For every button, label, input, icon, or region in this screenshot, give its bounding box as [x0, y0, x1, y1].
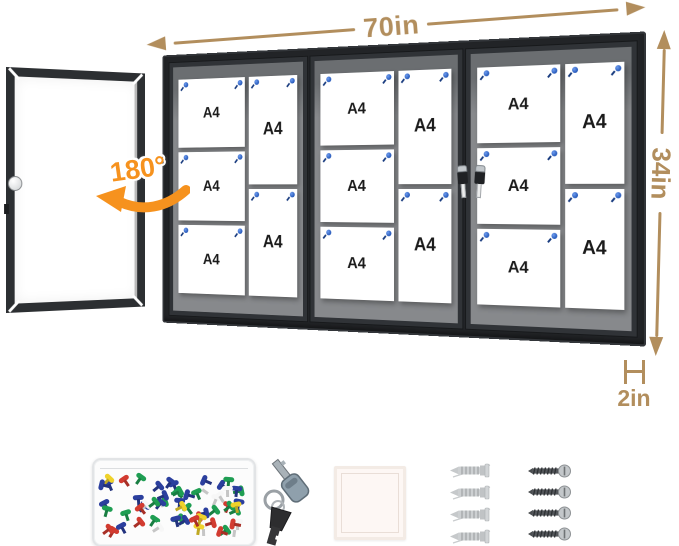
- wall-anchors: [448, 462, 495, 545]
- a4-paper-portrait: A4: [398, 69, 451, 184]
- arrow-left-icon: [146, 36, 166, 51]
- dimension-line: [174, 28, 356, 45]
- push-pin-icon: [323, 76, 331, 86]
- push-pin-icon: [383, 230, 392, 240]
- landscape-column: A4A4A4: [477, 64, 559, 307]
- a4-paper-landscape: A4: [320, 71, 394, 146]
- push-pin-icon: [383, 74, 392, 84]
- push-pin: [230, 501, 243, 514]
- push-pin-icon: [611, 65, 621, 76]
- felt-surface: A4A4A4A4A4: [471, 47, 632, 331]
- push-pin-icon: [480, 232, 489, 242]
- board-section-1: A4A4A4A4A4: [169, 57, 306, 322]
- width-label: 70in: [362, 9, 420, 44]
- paper-size-label: A4: [203, 250, 220, 269]
- rotation-arrow-icon: [94, 178, 190, 224]
- corner-highlight: [8, 300, 20, 313]
- screw: [527, 464, 573, 478]
- a4-paper-landscape: A4: [320, 149, 394, 222]
- a4-paper-portrait: A4: [249, 75, 297, 184]
- dimension-line: [660, 49, 665, 134]
- paper-size-label: A4: [263, 232, 283, 253]
- a4-paper-portrait: A4: [249, 189, 297, 298]
- board-section-2: A4A4A4A4A4: [310, 49, 463, 328]
- landscape-column: A4A4A4: [320, 71, 394, 301]
- product-image: 70in 34in 2in A4A4A4A4A4 A4A4A4A4A4 A4A4…: [0, 0, 679, 546]
- push-pin-icon: [547, 150, 557, 160]
- lock-with-keys: [458, 165, 485, 198]
- paper-size-label: A4: [508, 257, 529, 278]
- push-pin-icon: [181, 82, 189, 91]
- portrait-column: A4A4: [249, 75, 297, 297]
- wall-anchor: [448, 528, 495, 545]
- push-pin: [229, 518, 242, 531]
- push-pin-box: [92, 458, 256, 546]
- paper-size-label: A4: [263, 119, 283, 140]
- corner-highlight: [132, 74, 143, 86]
- push-pin-icon: [235, 80, 243, 89]
- push-pin: [100, 505, 113, 518]
- push-pin-icon: [323, 153, 331, 163]
- paper-size-label: A4: [347, 99, 366, 119]
- push-pin-icon: [440, 191, 449, 201]
- a4-paper-landscape: A4: [477, 229, 559, 308]
- push-pin-icon: [568, 67, 578, 78]
- push-pin-icon: [547, 233, 557, 243]
- notice-board-cabinet: A4A4A4A4A4 A4A4A4A4A4 A4A4A4A4A4: [148, 39, 679, 339]
- a4-paper-landscape: A4: [320, 227, 394, 301]
- adhesive-pad: [334, 466, 406, 540]
- felt-surface: A4A4A4A4A4: [173, 62, 303, 317]
- paper-size-label: A4: [347, 254, 366, 274]
- silver-key: [267, 458, 311, 504]
- push-pin-icon: [235, 228, 243, 237]
- felt-surface: A4A4A4A4A4: [314, 55, 458, 324]
- push-pin: [118, 474, 133, 489]
- push-pin-icon: [235, 154, 243, 163]
- keys-accessory: [256, 458, 326, 546]
- arrow-down-icon: [649, 337, 663, 356]
- dimension-line: [427, 8, 618, 25]
- depth-bracket-icon: [624, 360, 645, 384]
- a4-paper-portrait: A4: [565, 188, 625, 310]
- mounting-screws: [527, 464, 573, 541]
- a4-paper-landscape: A4: [477, 64, 559, 143]
- portrait-column: A4A4: [565, 62, 625, 310]
- wall-anchor: [448, 462, 495, 479]
- a4-paper-landscape: A4: [178, 77, 245, 148]
- push-pin-icon: [181, 155, 189, 164]
- a4-paper-portrait: A4: [398, 189, 451, 304]
- paper-size-label: A4: [582, 111, 606, 134]
- push-pin-icon: [547, 68, 557, 79]
- wall-anchor: [448, 506, 495, 523]
- push-pin-icon: [286, 191, 294, 200]
- arrow-right-icon: [626, 0, 646, 15]
- door-lock-knob: [8, 176, 22, 191]
- push-pin-icon: [611, 192, 621, 202]
- paper-size-label: A4: [508, 176, 529, 196]
- a4-paper-landscape: A4: [477, 147, 559, 225]
- screw: [527, 527, 573, 541]
- push-pin-icon: [251, 79, 259, 89]
- paper-size-label: A4: [508, 94, 529, 115]
- push-pin-icon: [401, 73, 410, 83]
- paper-size-label: A4: [414, 235, 436, 257]
- push-pin-icon: [181, 228, 189, 237]
- push-pin-icon: [568, 192, 578, 202]
- paper-size-label: A4: [347, 177, 366, 196]
- paper-size-label: A4: [582, 237, 606, 260]
- corner-highlight: [132, 295, 143, 307]
- portrait-column: A4A4: [398, 69, 451, 304]
- a4-paper-landscape: A4: [178, 225, 245, 296]
- door-latch: [4, 204, 9, 214]
- push-pin: [132, 472, 147, 487]
- push-pin-icon: [440, 72, 449, 82]
- height-label: 34in: [644, 147, 676, 200]
- depth-label: 2in: [608, 385, 660, 412]
- corner-highlight: [8, 67, 20, 80]
- screw: [527, 506, 573, 520]
- push-pin-icon: [323, 230, 331, 240]
- paper-size-label: A4: [203, 104, 220, 123]
- screw: [527, 485, 573, 499]
- board-section-3: A4A4A4A4A4: [466, 41, 636, 336]
- paper-size-label: A4: [203, 177, 220, 195]
- push-pin-icon: [286, 78, 294, 88]
- black-key: [262, 507, 291, 546]
- arrow-up-icon: [657, 30, 671, 49]
- hanging-key: [457, 165, 469, 198]
- push-pin: [221, 486, 232, 497]
- push-pin: [216, 525, 230, 539]
- paper-size-label: A4: [414, 116, 436, 138]
- push-pin-icon: [480, 70, 489, 80]
- a4-paper-portrait: A4: [565, 62, 625, 184]
- push-pin-icon: [383, 152, 392, 162]
- hanging-key: [473, 165, 485, 199]
- dimension-line: [655, 212, 661, 337]
- push-pin-icon: [251, 191, 259, 200]
- push-pin-icon: [480, 151, 489, 161]
- wall-anchor: [448, 484, 495, 501]
- push-pin-icon: [401, 191, 410, 201]
